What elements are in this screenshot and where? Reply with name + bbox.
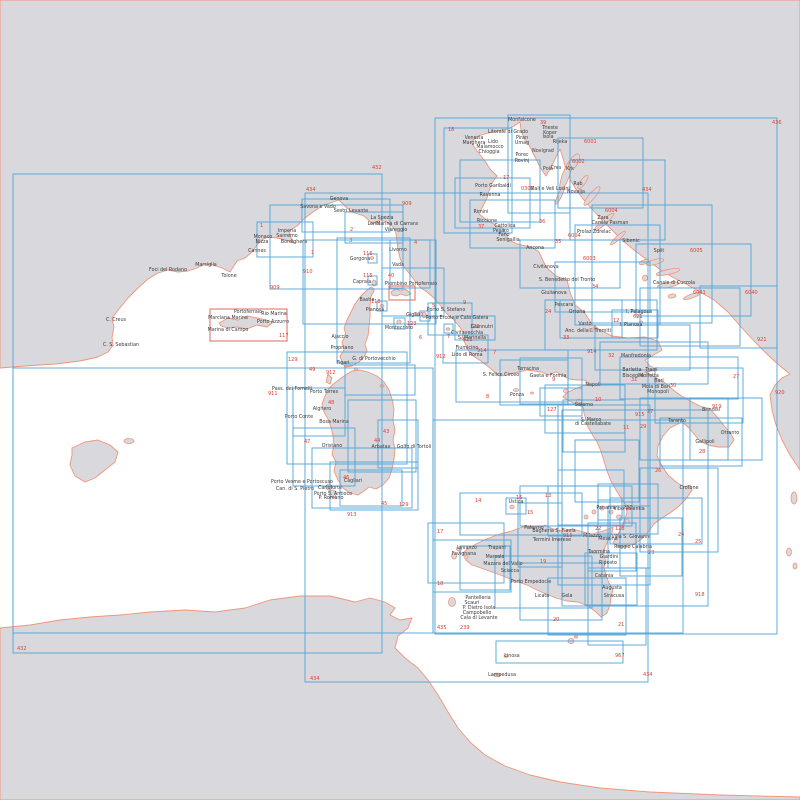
place-label: Licata: [535, 593, 549, 599]
place-label: Taranto: [667, 418, 686, 424]
place-label: Marsala: [486, 554, 505, 560]
place-label: Otranto: [721, 430, 739, 436]
chart-number: 129: [288, 357, 298, 363]
place-label: I. Pianosa: [620, 322, 643, 328]
chart-number: 22: [595, 526, 601, 532]
chart-number: 25: [695, 539, 701, 545]
place-label: Linosa: [504, 653, 519, 659]
chart-number: 6003: [583, 256, 596, 262]
chart-number: 48: [328, 400, 334, 406]
place-label: Fiumicino: [456, 345, 479, 351]
place-label: Porto Ercole e Cala Galera: [426, 315, 489, 321]
place-label: Piombino: [385, 281, 407, 287]
chart-number: 914: [587, 349, 597, 355]
chart-number: 434: [642, 187, 652, 193]
place-label: Porto Vesme e Portoscuso: [271, 479, 333, 485]
chart-number: 28: [699, 449, 705, 455]
place-label: Mali e Veli Losinj: [530, 186, 570, 192]
place-label: Marsiglia: [195, 262, 217, 268]
place-label: Gorgona: [350, 256, 371, 262]
place-label: Arbatax: [372, 444, 391, 450]
place-label: Catania: [595, 573, 613, 579]
chart-number: 128: [615, 526, 625, 532]
place-label: S. Benedetto del Tronto: [539, 277, 595, 283]
place-label: G. di Portovecchio: [352, 356, 396, 362]
place-label: Gallipoli: [695, 439, 714, 445]
chart-number: 915: [635, 412, 645, 418]
place-label: Sibenic: [622, 238, 640, 244]
chart-number: 129: [399, 502, 409, 508]
chart-number: 913: [347, 512, 357, 518]
chart-number: 967: [615, 653, 625, 659]
island: [397, 320, 401, 324]
island: [510, 505, 514, 509]
place-label: Alghero: [313, 406, 332, 412]
chart-number: 43: [383, 429, 389, 435]
place-label: Porto Torres: [310, 389, 339, 395]
chart-number: 6040: [745, 290, 758, 296]
place-label: Ortona: [569, 309, 586, 315]
place-label: Montecristo: [385, 325, 413, 331]
place-label: Split: [654, 248, 665, 254]
chart-number: 7: [447, 334, 450, 340]
place-label: Bari: [654, 378, 664, 384]
place-label: Sanremo: [276, 233, 298, 239]
place-label: Ustica: [509, 499, 524, 505]
chart-number: 40: [388, 273, 394, 279]
place-label: S. Felice Circeo: [483, 372, 519, 378]
place-label: Portoferraio: [409, 281, 437, 287]
place-label: Krk: [566, 166, 574, 172]
place-label: Porto S. Stefano: [427, 307, 466, 313]
place-label: Golfo di Tortoli: [397, 444, 432, 450]
island: [124, 439, 134, 444]
island: [446, 328, 450, 330]
place-label: Cannes: [248, 248, 266, 254]
place-label: Manfredonia: [621, 353, 651, 359]
chart-number: 6001: [584, 139, 597, 145]
place-label: Terracina: [516, 366, 539, 372]
chart-number: 6: [419, 335, 422, 341]
island: [531, 392, 534, 394]
chart-number: 6004: [605, 208, 618, 214]
place-label: Porto Conte: [285, 414, 313, 420]
place-label: Crotone: [680, 485, 699, 491]
chart-number: 912: [436, 354, 446, 360]
chart-number: 435: [437, 625, 447, 631]
place-label: Pianosa: [366, 307, 385, 313]
place-label: Monfalcone: [508, 117, 536, 123]
place-label: Rovinj: [515, 158, 530, 164]
place-label: Cres: [551, 165, 562, 171]
place-label: Chioggia: [478, 149, 499, 155]
place-label: Bosa Marina: [319, 419, 349, 425]
place-label: Ajaccio: [331, 334, 348, 340]
place-label: Pass. dei Fornelli: [272, 386, 312, 392]
place-label: Favignana: [452, 551, 476, 557]
place-label: Sestri Levante: [334, 208, 368, 214]
place-label: Propriano: [331, 345, 354, 351]
map-canvas: 4324324344344344344369099099109119129129…: [0, 0, 800, 800]
place-label: Rab: [573, 181, 582, 187]
place-label: Giglio: [406, 312, 420, 318]
chart-number: 34: [592, 284, 598, 290]
chart-number: 434: [643, 672, 653, 678]
place-label: Senigallia: [496, 237, 519, 243]
place-label: Porec: [515, 152, 528, 158]
chart-number: 921: [757, 337, 767, 343]
chart-number: 909: [402, 201, 412, 207]
place-label: Brindisi: [702, 407, 720, 413]
place-label: Rio Marina: [261, 311, 287, 317]
chart-number: 920: [775, 390, 785, 396]
chart-number: 432: [17, 646, 27, 652]
chart-number: 13: [545, 493, 551, 499]
place-label: Rijeka: [553, 139, 568, 145]
place-label: Panarea: [596, 505, 615, 511]
chart-number: 3: [349, 238, 352, 244]
place-label: I. Pelagosa: [626, 309, 652, 315]
place-label: Cala di Levante: [460, 615, 497, 621]
place-label: Giannutri: [471, 324, 493, 330]
place-label: Vibo Valentia: [613, 506, 644, 512]
island: [791, 492, 797, 504]
place-label: Tolone: [220, 273, 236, 279]
chart-number: 912: [326, 370, 336, 376]
place-label: Giardini: [600, 554, 619, 560]
chart-number: 23: [648, 550, 654, 556]
place-label: Carloforte: [318, 485, 342, 491]
chart-number: 18: [448, 127, 454, 133]
chart-number: 32: [608, 353, 614, 359]
place-label: Foci del Rodano: [149, 267, 187, 273]
chart-index-map: 4324324344344344344369099099109119129129…: [0, 0, 800, 800]
chart-number: 47: [304, 439, 310, 445]
island: [787, 548, 792, 556]
chart-number: 127: [547, 407, 557, 413]
place-label: Gaeta e Formia: [530, 373, 567, 379]
place-label: Porto Azzurro: [257, 319, 289, 325]
place-label: La Spezia: [371, 215, 394, 221]
place-label: Trani: [644, 367, 657, 373]
place-label: Oristano: [322, 443, 342, 449]
place-label: S. Marinella: [458, 335, 486, 341]
chart-number: 30: [670, 383, 676, 389]
place-label: Rimini: [473, 209, 488, 215]
chart-number: 7: [493, 350, 496, 356]
place-label: Prolaz Zdrelac: [577, 229, 611, 235]
chart-number: 909: [270, 285, 280, 291]
place-label: Giulianova: [541, 290, 567, 296]
place-label: Vasto: [578, 321, 591, 327]
chart-number: 18: [437, 581, 443, 587]
chart-number: 4: [414, 240, 417, 246]
chart-number: 33: [563, 335, 569, 341]
place-label: Canale di Curzola: [653, 280, 695, 286]
place-label: Viareggio: [385, 227, 408, 233]
place-label: Gela: [562, 593, 573, 599]
place-label: Capraia: [353, 279, 372, 285]
chart-number: 37: [478, 224, 484, 230]
chart-number: 432: [372, 165, 382, 171]
place-label: Lampedusa: [488, 672, 516, 678]
place-label: Ravenna: [480, 192, 501, 198]
chart-number: 239: [460, 625, 470, 631]
chart-number: 115: [363, 273, 373, 279]
place-label: Litorale di Grado: [488, 129, 528, 135]
place-label: Bagheria S. Flavia: [532, 528, 575, 534]
chart-number: 21: [618, 622, 624, 628]
chart-number: 26: [655, 468, 661, 474]
place-label: Vada: [392, 262, 404, 268]
chart-number: 910: [303, 269, 313, 275]
chart-number: 434: [306, 187, 316, 193]
place-label: Anc. della I. Tremiti: [565, 328, 611, 334]
place-label: Savona e Vado: [300, 204, 336, 210]
place-label: Cagliari: [344, 478, 362, 484]
chart-number: 11: [623, 425, 629, 431]
chart-number: 36: [539, 219, 545, 225]
place-label: Marciana Marina: [208, 315, 248, 321]
chart-number: 19: [540, 559, 546, 565]
chart-number: 6041: [693, 290, 706, 296]
place-label: Ponza: [510, 392, 524, 398]
place-label: Messina: [598, 536, 617, 542]
place-label: Can. di S. Pietro: [276, 486, 314, 492]
place-label: Pescara: [555, 302, 574, 308]
place-label: Ancona: [526, 245, 544, 251]
chart-number: 6002: [572, 159, 585, 165]
chart-number: 29: [640, 424, 646, 430]
place-label: Reggio Calabria: [614, 544, 652, 550]
place-label: Riposto: [599, 560, 617, 566]
chart-number: 17: [503, 175, 509, 181]
place-label: Porto Garibaldi: [475, 183, 511, 189]
place-label: Marina di Carrara: [376, 221, 418, 227]
island: [584, 515, 588, 519]
place-label: Figari: [336, 360, 349, 366]
chart-number: 17: [437, 529, 443, 535]
chart-number: 1: [260, 223, 263, 229]
place-label: Siracusa: [604, 593, 624, 599]
chart-number: 8: [486, 394, 489, 400]
chart-number: 14: [475, 498, 481, 504]
place-label: Sciacca: [501, 568, 519, 574]
island: [643, 275, 648, 281]
chart-number: 24: [545, 309, 551, 315]
chart-number: 117: [279, 333, 289, 339]
place-label: C. Creus: [106, 317, 127, 323]
place-label: Portoferraio: [234, 309, 262, 315]
place-label: Umag: [515, 140, 529, 146]
place-label: Porto Empedocle: [511, 579, 552, 585]
chart-number: 2: [350, 227, 353, 233]
chart-number: 6005: [690, 248, 703, 254]
place-label: Nizza: [256, 239, 269, 245]
place-label: Salerno: [575, 402, 593, 408]
chart-number: 20: [553, 617, 559, 623]
place-label: Barletta: [622, 367, 641, 373]
chart-number: 27: [647, 409, 653, 415]
place-label: Bastia: [360, 297, 375, 303]
place-label: Termini Imerese: [532, 537, 571, 543]
place-label: Milazzo: [583, 533, 601, 539]
chart-number: 436: [772, 120, 782, 126]
chart-number: 45: [381, 501, 387, 507]
place-label: Monopoli: [647, 389, 669, 395]
place-label: Trapani: [487, 545, 506, 551]
chart-number: 15: [527, 510, 533, 516]
chart-number: 27: [733, 374, 739, 380]
place-label: C. S. Sebastian: [103, 342, 139, 348]
island: [793, 563, 797, 569]
island: [575, 636, 578, 638]
island: [625, 519, 629, 523]
place-label: Civitanova: [533, 264, 558, 270]
island: [449, 598, 456, 607]
chart-number: 434: [310, 676, 320, 682]
place-label: Novigrad: [532, 148, 554, 154]
chart-number: 1: [311, 250, 314, 256]
place-label: P. Romano: [319, 495, 344, 501]
place-label: Napoli: [585, 382, 600, 388]
place-label: di Castellabate: [575, 421, 611, 427]
place-label: Augusta: [602, 585, 622, 591]
chart-number: 24: [678, 532, 684, 538]
chart-number: 44: [374, 438, 380, 444]
chart-number: 49: [309, 367, 315, 373]
place-label: Lido di Roma: [451, 352, 482, 358]
place-label: Marina di Campo: [208, 327, 249, 333]
chart-number: 35: [555, 239, 561, 245]
chart-number: 9: [463, 300, 466, 306]
place-label: Bordighera: [281, 239, 307, 245]
place-label: Novalja: [567, 189, 585, 195]
chart-number: 918: [695, 592, 705, 598]
place-label: Levanzo: [457, 545, 477, 551]
place-label: Livorno: [389, 247, 407, 253]
island: [514, 389, 519, 392]
chart-number: 10: [595, 397, 601, 403]
place-label: Genova: [330, 196, 348, 202]
chart-number: 12: [613, 318, 619, 324]
place-label: Mazara del Vallo: [483, 561, 522, 567]
place-label: Canale Pasman: [592, 220, 629, 226]
